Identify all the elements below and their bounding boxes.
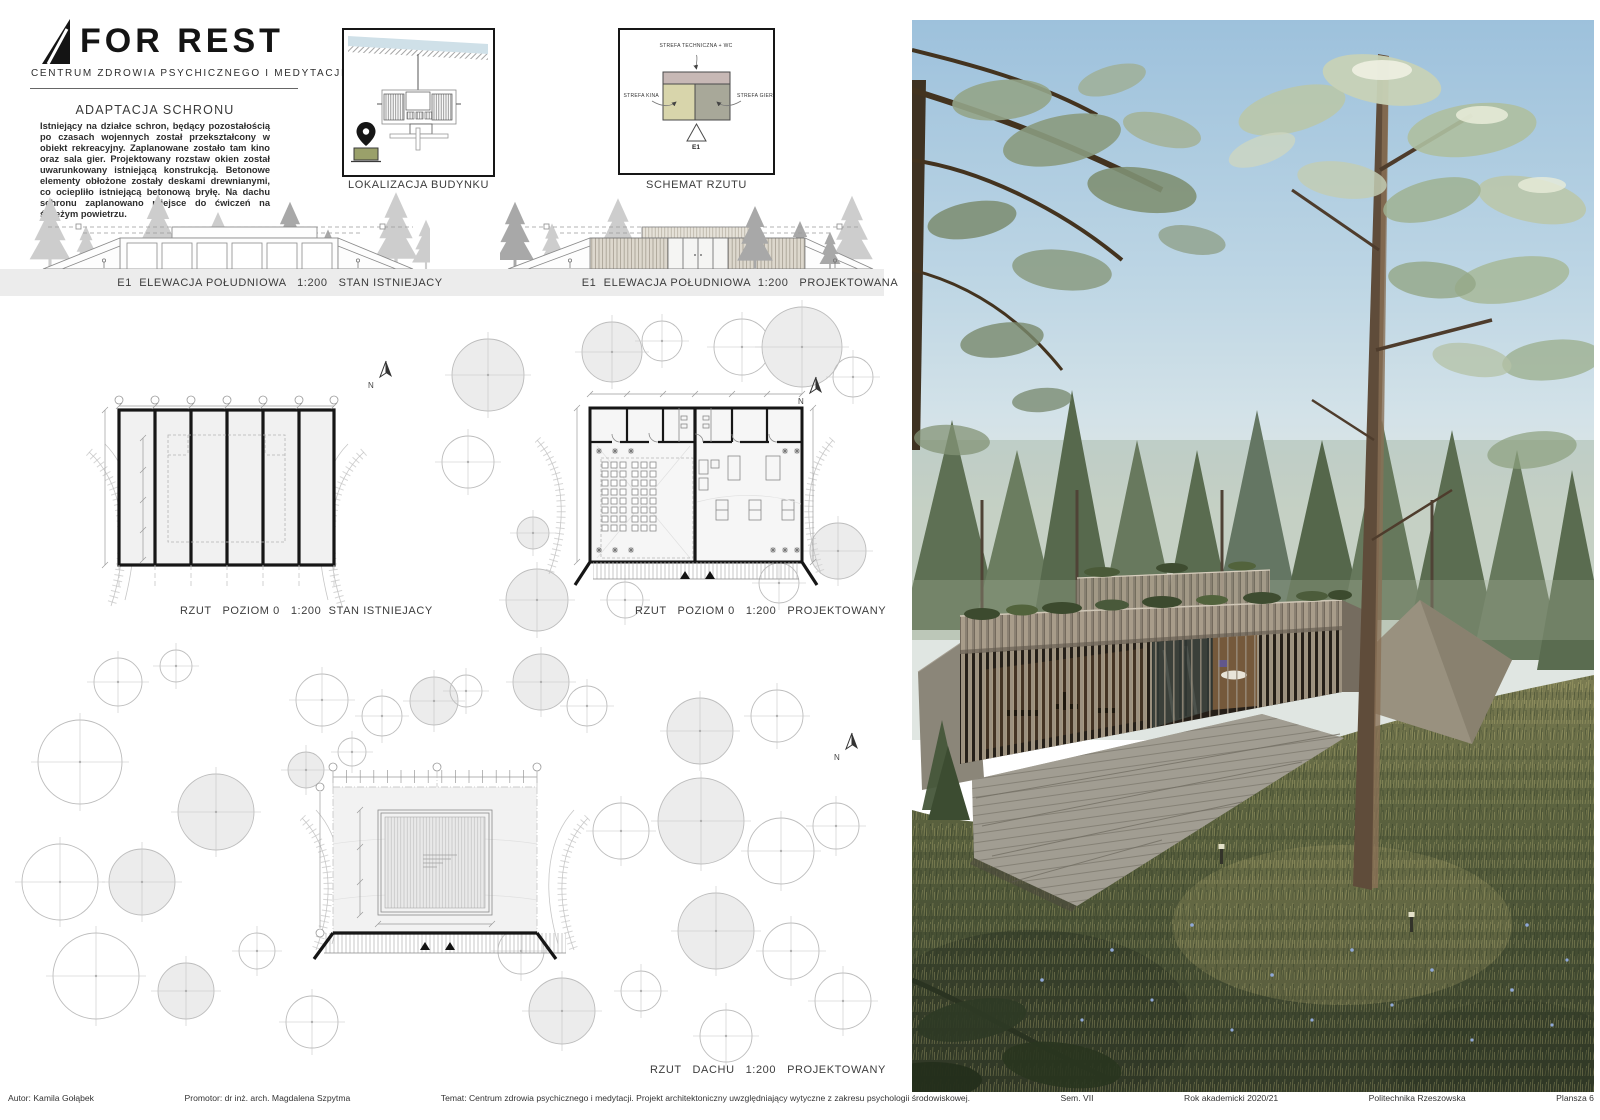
elevation-existing-caption: E1 ELEWACJA POŁUDNIOWA 1:200 STAN ISTNIE… [115, 277, 445, 289]
zone-label-cinema: STREFA KINA [621, 93, 659, 99]
north-arrow-icon [844, 732, 860, 752]
plan-existing-caption: RZUT POZIOM 0 1:200 STAN ISTNIEJACY [180, 605, 410, 617]
elevation-proposed-drawing [500, 188, 875, 269]
elevation-proposed-caption: E1 ELEWACJA POŁUDNIOWA 1:200 PROJEKTOWAN… [575, 277, 905, 289]
footer: Autor: Kamila Gołąbek Promotor: dr inż. … [8, 1093, 1594, 1103]
logo-subtitle: CENTRUM ZDROWIA PSYCHICZNEGO I MEDYTACJI [31, 68, 346, 79]
section-marker-label: E1 [620, 144, 772, 151]
logo-title: FOR REST [80, 22, 284, 61]
render-photo [912, 20, 1594, 1092]
plan-proposed-caption: RZUT POZIOM 0 1:200 PROJEKTOWANY [635, 605, 875, 617]
north-arrow: N [834, 732, 860, 762]
roof-plan-drawing [300, 752, 590, 982]
north-arrow: N [368, 360, 394, 390]
elevation-existing-drawing [28, 188, 430, 269]
zone-label-games: STREFA GIER [737, 93, 775, 99]
location-pin-icon [357, 122, 376, 146]
logo-icon [38, 16, 76, 66]
footer-year: Rok akademicki 2020/21 [1184, 1093, 1278, 1103]
north-arrow: N [798, 376, 824, 406]
footer-sheet: Plansza 6 [1556, 1093, 1594, 1103]
intro-heading: ADAPTACJA SCHRONU [40, 103, 270, 117]
logo-rule [30, 88, 298, 89]
north-arrow-icon [808, 376, 824, 396]
plan-proposed-drawing [535, 382, 835, 607]
footer-promoter: Promotor: dr inż. arch. Magdalena Szpytm… [185, 1093, 351, 1103]
footer-university: Politechnika Rzeszowska [1369, 1093, 1466, 1103]
schema-diagram: STREFA TECHNICZNA + WC STREFA KINA STREF… [618, 28, 775, 175]
roof-plan-caption: RZUT DACHU 1:200 PROJEKTOWANY [650, 1064, 880, 1076]
location-map-drawing [344, 30, 492, 174]
footer-author: Autor: Kamila Gołąbek [8, 1093, 94, 1103]
north-arrow-icon [378, 360, 394, 380]
footer-semester: Sem. VII [1061, 1093, 1094, 1103]
location-map [342, 28, 495, 177]
plan-existing-drawing [85, 360, 405, 610]
section-marker-triangle [687, 124, 706, 141]
zone-label-technical: STREFA TECHNICZNA + WC [620, 43, 772, 49]
footer-topic: Temat: Centrum zdrowia psychicznego i me… [441, 1093, 970, 1103]
presentation-board: FOR REST CENTRUM ZDROWIA PSYCHICZNEGO I … [0, 0, 1600, 1120]
